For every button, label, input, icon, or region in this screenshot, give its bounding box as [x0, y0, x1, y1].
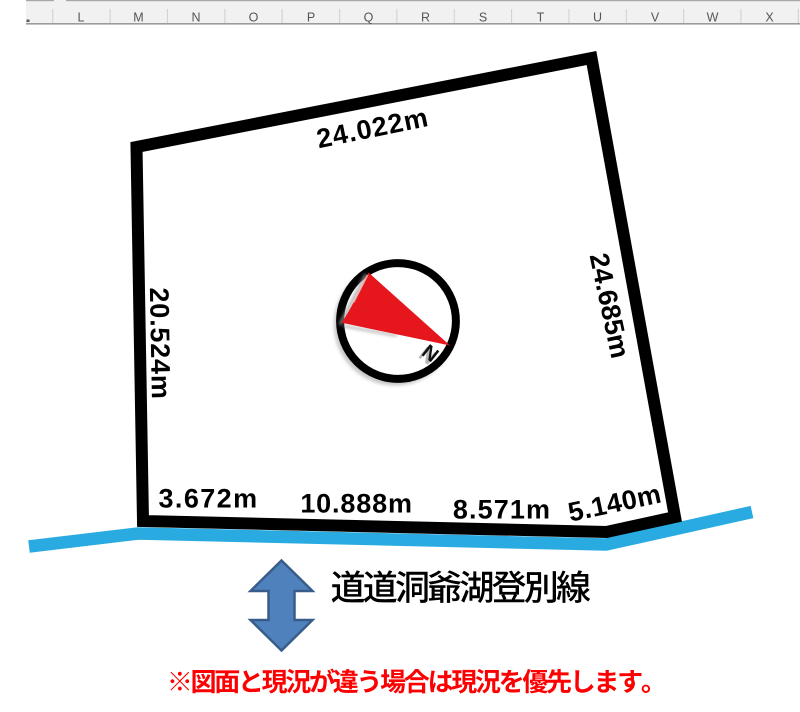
svg-text:N: N	[191, 10, 200, 24]
svg-text:O: O	[249, 10, 259, 24]
svg-text:8.571m: 8.571m	[453, 495, 551, 525]
svg-text:Q: Q	[364, 10, 374, 24]
svg-text:L: L	[78, 10, 85, 24]
svg-text:V: V	[651, 10, 660, 24]
svg-text:S: S	[479, 10, 487, 24]
svg-text:10.888m: 10.888m	[300, 489, 413, 519]
svg-text:W: W	[707, 10, 719, 24]
svg-text:T: T	[537, 10, 545, 24]
svg-text:U: U	[593, 10, 602, 24]
svg-text:3.672m: 3.672m	[159, 484, 259, 514]
svg-text:X: X	[765, 10, 774, 24]
svg-text:R: R	[421, 10, 430, 24]
svg-text:20.524m: 20.524m	[144, 287, 176, 400]
svg-text:M: M	[133, 10, 143, 24]
svg-text:P: P	[307, 10, 315, 24]
